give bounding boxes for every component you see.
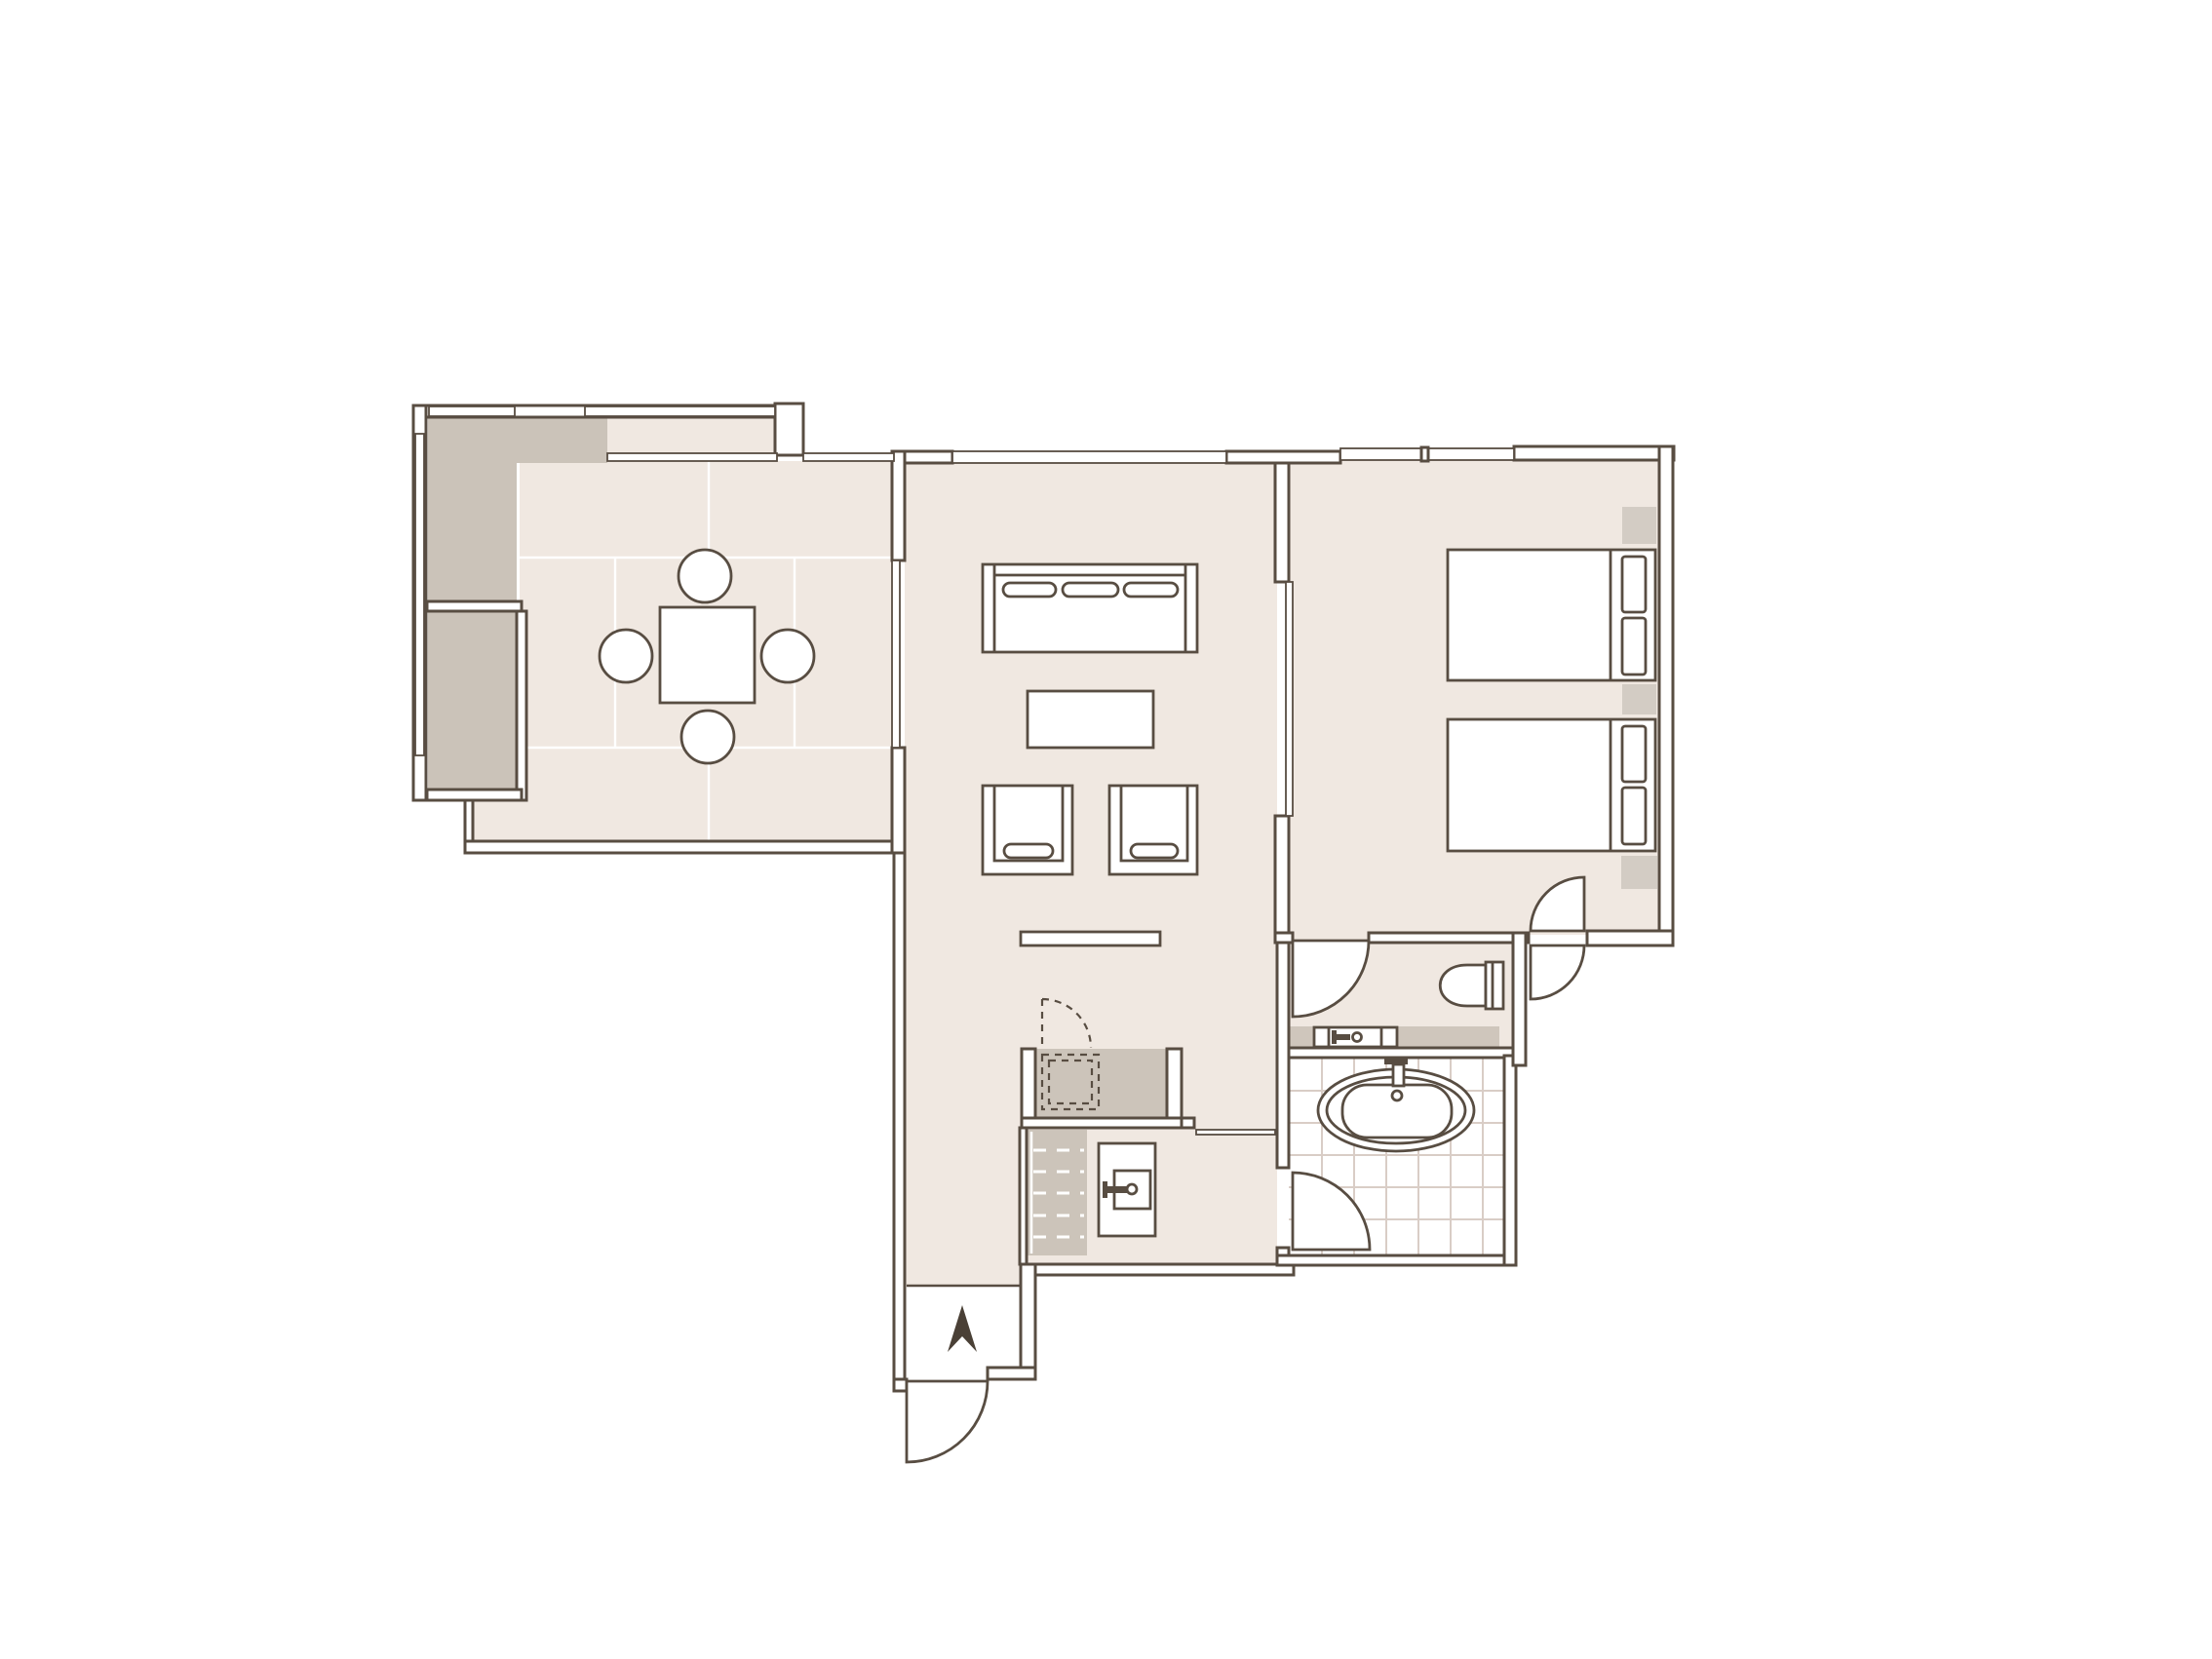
- sofa-cushion-2: [1063, 583, 1118, 597]
- sofa-cushion-3: [1124, 583, 1178, 597]
- dining-bay-window-a: [607, 453, 777, 461]
- wall-closet-left-stub: [1022, 1049, 1035, 1128]
- toilet-vanity-sink: [1314, 1027, 1397, 1047]
- wall-west-outer-lower: [894, 853, 905, 1379]
- dining-chair-south: [681, 711, 734, 763]
- floor-plan-page: [0, 0, 2212, 1659]
- wall-bathblock-left-upper: [1277, 943, 1289, 1168]
- dining-chair-north: [679, 550, 731, 602]
- wall-entry-step: [988, 1368, 1035, 1379]
- wall-hall-bottom: [1035, 1264, 1294, 1275]
- wall-bay-step-pillar: [775, 404, 803, 455]
- sofa: [983, 564, 1197, 652]
- wall-partition-lower: [1275, 816, 1289, 943]
- armchair-right-cushion: [1131, 844, 1178, 858]
- nightstand-2: [1622, 684, 1656, 714]
- wall-toilet-bath-divider: [1277, 1048, 1513, 1058]
- nightstand-3: [1621, 856, 1657, 889]
- wall-dining-step: [465, 800, 473, 843]
- nightstand-1: [1622, 507, 1656, 544]
- entrance-door-swing: [907, 1381, 988, 1462]
- dining-bay-floor-strip: [607, 418, 777, 455]
- wall-balcony-inner: [517, 611, 526, 800]
- wall-living-top-left: [905, 451, 952, 463]
- balcony-bench-lower: [428, 612, 517, 790]
- wall-bedroom-right: [1659, 446, 1673, 945]
- wall-bath-bottom: [1277, 1255, 1516, 1265]
- wall-closet-step: [1182, 1118, 1194, 1128]
- north-arrow-icon: [948, 1305, 977, 1352]
- closet-luggage-area: [1035, 1049, 1167, 1118]
- wall-balcony-divider: [427, 601, 522, 611]
- bedroom-floor: [1289, 458, 1659, 935]
- balcony-window-top-a: [429, 406, 515, 416]
- dining-chair-west: [600, 630, 652, 682]
- toilet-bowl: [1440, 965, 1486, 1006]
- wall-bath-right: [1504, 1056, 1516, 1265]
- wall-toilet-right: [1513, 933, 1526, 1065]
- wall-balcony-bottom: [427, 790, 522, 800]
- floor-plan-svg: [0, 0, 2212, 1659]
- wall-wardrobe-left: [1020, 1128, 1027, 1264]
- wall-dining-bottom: [465, 841, 905, 853]
- balcony-window-top-b: [585, 406, 775, 416]
- vestibule-door-swing: [1531, 945, 1584, 999]
- toilet-tank: [1486, 962, 1503, 1009]
- console-desk: [1021, 932, 1160, 945]
- armchair-left-cushion: [1004, 844, 1053, 858]
- wall-partition-stem: [1275, 463, 1289, 582]
- balcony-bench-upper: [428, 417, 517, 602]
- wall-entry-right: [1021, 1264, 1035, 1379]
- sofa-cushion-1: [1003, 583, 1056, 597]
- twin-bed-2-pillow-a: [1622, 726, 1646, 782]
- bathtub-basin: [1342, 1085, 1452, 1138]
- twin-bed-1-pillow-a: [1622, 557, 1646, 612]
- wall-entry-left-cap: [894, 1379, 907, 1391]
- twin-bed-1-pillow-b: [1622, 618, 1646, 675]
- wall-pillar-dining-top: [892, 451, 905, 560]
- wall-closet-bottom: [1022, 1118, 1182, 1128]
- wall-pillar-dining-bottom: [892, 748, 905, 853]
- coffee-table: [1028, 691, 1153, 748]
- wall-bedroom-bottom-right: [1587, 931, 1673, 945]
- balcony-window-left: [415, 434, 424, 755]
- bedroom-window-mullion: [1421, 447, 1428, 461]
- living-bedroom-sliding-panel: [1286, 582, 1293, 816]
- hall-threshold: [1196, 1130, 1275, 1135]
- living-window: [952, 451, 1226, 463]
- dining-table: [660, 607, 755, 703]
- dining-living-glass-partition: [892, 560, 900, 748]
- wall-bedroom-top: [1514, 446, 1674, 460]
- dining-chair-east: [761, 630, 814, 682]
- wall-toilet-top-b: [1369, 933, 1529, 943]
- wall-living-top-right: [1226, 451, 1340, 463]
- wall-closet-right-stub: [1167, 1049, 1182, 1128]
- twin-bed-2-pillow-b: [1622, 788, 1646, 844]
- dining-bay-window-b: [803, 453, 894, 461]
